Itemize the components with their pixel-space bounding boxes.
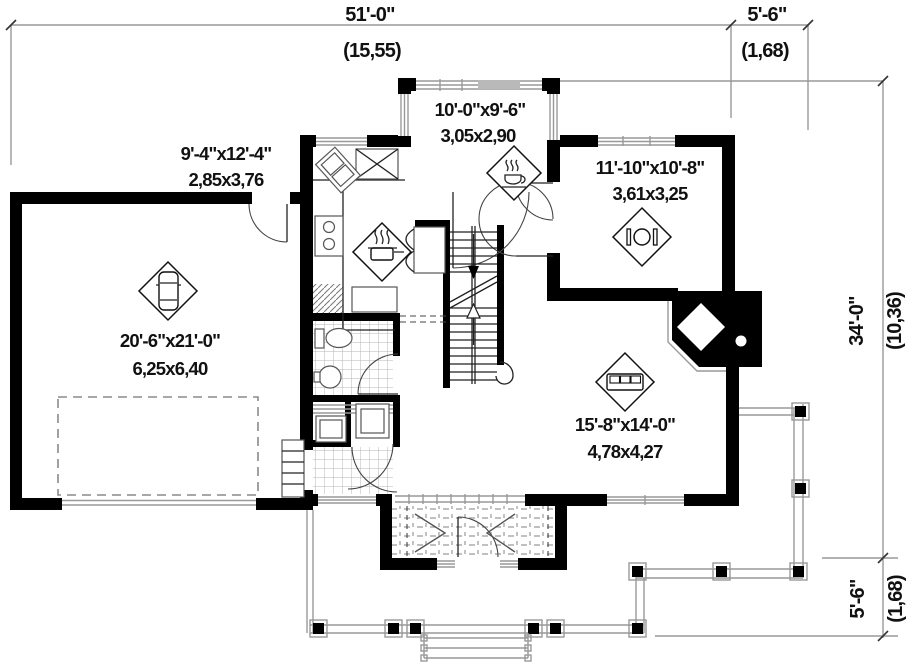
- dim-right-ft: 34'-0": [846, 296, 868, 346]
- dim-top-right-ft: 5'-6": [747, 4, 786, 26]
- pantry-hatch: [313, 284, 343, 314]
- living-room: 15'-8"x14'-0" 4,78x4,27: [575, 353, 675, 462]
- dining-right-wall: [722, 135, 735, 295]
- fireplace-flue: [736, 336, 747, 347]
- dim-top-m: (15,55): [343, 40, 401, 62]
- stove: [356, 149, 398, 179]
- laundry-top-wall: [306, 395, 400, 402]
- toilet: [315, 329, 352, 349]
- utility-closet: [356, 404, 389, 438]
- kitchen-dim-ft: 9'-4"x12'-4": [181, 143, 272, 164]
- kitchen-dim-m: 2,85x3,76: [188, 169, 264, 190]
- dinette-top-wall: [398, 78, 416, 91]
- garage-steps: [282, 440, 304, 497]
- kitchen-window: [316, 138, 367, 145]
- cooking-pot-icon: [353, 223, 411, 281]
- handrail-curl: [496, 362, 513, 384]
- kitchen-island: [352, 287, 397, 312]
- foyer-arch-header: [395, 494, 525, 504]
- garage-top-wall: [10, 192, 252, 204]
- dim-right-m: (10,36): [884, 292, 906, 350]
- living-window: [607, 495, 684, 505]
- fireplace: [668, 291, 762, 371]
- porch-column: [547, 620, 564, 637]
- garage-bottom-wall: [10, 498, 62, 510]
- dining-dim-m: 3,61x3,25: [612, 183, 688, 204]
- foyer-tile: [392, 506, 555, 558]
- sofa-icon: [596, 353, 654, 411]
- garage-left-wall: [10, 192, 22, 510]
- dining-table-icon: [613, 208, 671, 266]
- dim-top-ft: 51'-0": [345, 4, 395, 26]
- garage-entry-door: [249, 204, 287, 242]
- dinette-dim-m: 3,05x2,90: [440, 125, 516, 146]
- stair-right-wall: [497, 225, 504, 365]
- laundry-room: [313, 404, 393, 442]
- dining-room: 11'-10"x10'-8" 3,61x3,25: [596, 157, 705, 266]
- kitchen-top-wall: [300, 135, 316, 147]
- dim-top-right-m: (1,68): [741, 40, 789, 62]
- parking-space: [58, 397, 258, 495]
- dim-bottom-right-ft: 5'-6": [847, 579, 869, 618]
- garage-dim-ft: 20'-6"x21'-0": [120, 330, 220, 351]
- refrigerator: [406, 227, 445, 273]
- living-dim-m: 4,78x4,27: [587, 441, 663, 462]
- living-dim-ft: 15'-8"x14'-0": [575, 414, 675, 435]
- dim-bottom-right-m: (1,68): [885, 575, 907, 623]
- porch-column: [385, 620, 402, 637]
- floor-plan-page: 51'-0" (15,55) 5'-6" (1,68) 34'-0" (10,3…: [0, 0, 916, 663]
- living-right-wall: [726, 360, 739, 506]
- kitchen-sink: [316, 147, 361, 193]
- powder-top-wall: [306, 313, 400, 321]
- west-wall: [300, 135, 313, 450]
- garage-door: [62, 501, 256, 506]
- washer: [316, 416, 346, 442]
- dining-bottom-wall: [547, 288, 678, 301]
- foyer-sidelight-left: [437, 561, 455, 567]
- car-icon: [139, 262, 197, 320]
- dining-window: [598, 136, 675, 146]
- garage-room: 20'-6"x21'-0" 6,25x6,40: [58, 262, 304, 497]
- floor-plan-drawing: 51'-0" (15,55) 5'-6" (1,68) 34'-0" (10,3…: [0, 0, 916, 663]
- dinette-dim-ft: 10'-0"x9'-6": [435, 99, 526, 120]
- coffee-cup-icon: [487, 146, 541, 200]
- wall-oven: [315, 216, 343, 256]
- hall-window: [318, 497, 376, 503]
- foyer-bottom-wall: [380, 558, 437, 570]
- dining-dim-ft: 11'-10"x10'-8": [596, 157, 705, 178]
- garage-dim-m: 6,25x6,40: [132, 358, 208, 379]
- entry-steps: [421, 633, 531, 661]
- dinette-room: 10'-0"x9'-6" 3,05x2,90: [435, 99, 541, 200]
- foyer-sidelight-right: [500, 561, 518, 567]
